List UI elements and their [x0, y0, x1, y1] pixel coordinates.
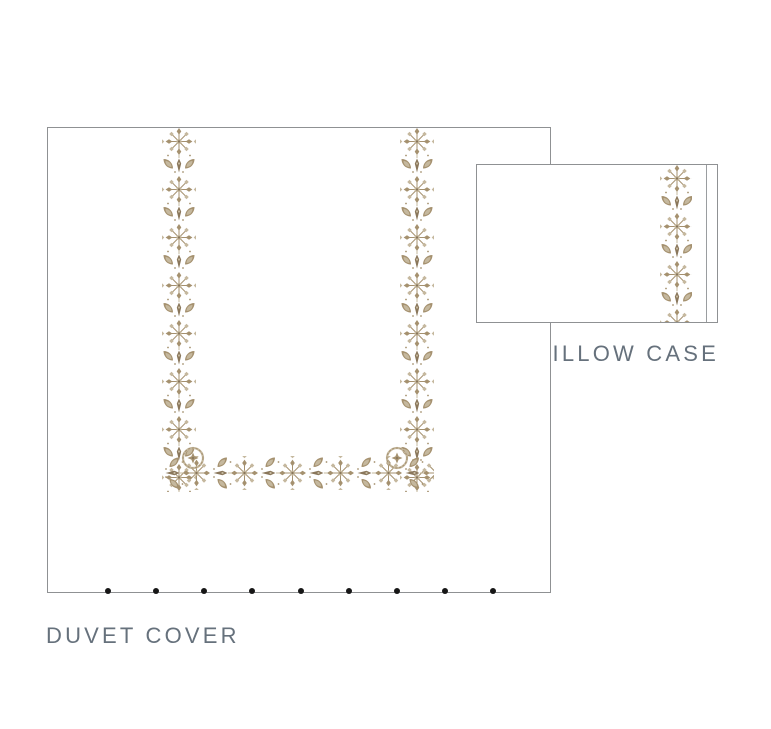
duvet-cover-label: DUVET COVER: [46, 623, 240, 649]
pillow-band: [660, 165, 694, 322]
duvet-button-dots: [105, 588, 496, 594]
pillow-embroidery-band: [477, 165, 717, 322]
button-dot: [249, 588, 255, 594]
button-dot: [105, 588, 111, 594]
button-dot: [153, 588, 159, 594]
button-dot: [490, 588, 496, 594]
pillow-flap-seam: [706, 165, 707, 322]
duvet-band-left: [162, 128, 196, 509]
bedding-diagram-canvas: DUVET COVER PILLOW CASE: [0, 0, 771, 729]
button-dot: [442, 588, 448, 594]
pillow-case-label: PILLOW CASE: [535, 341, 719, 367]
pillow-case-diagram: [476, 164, 718, 323]
duvet-embroidery-border: [48, 128, 550, 592]
button-dot: [394, 588, 400, 594]
button-dot: [201, 588, 207, 594]
button-dot: [298, 588, 304, 594]
button-dot: [346, 588, 352, 594]
